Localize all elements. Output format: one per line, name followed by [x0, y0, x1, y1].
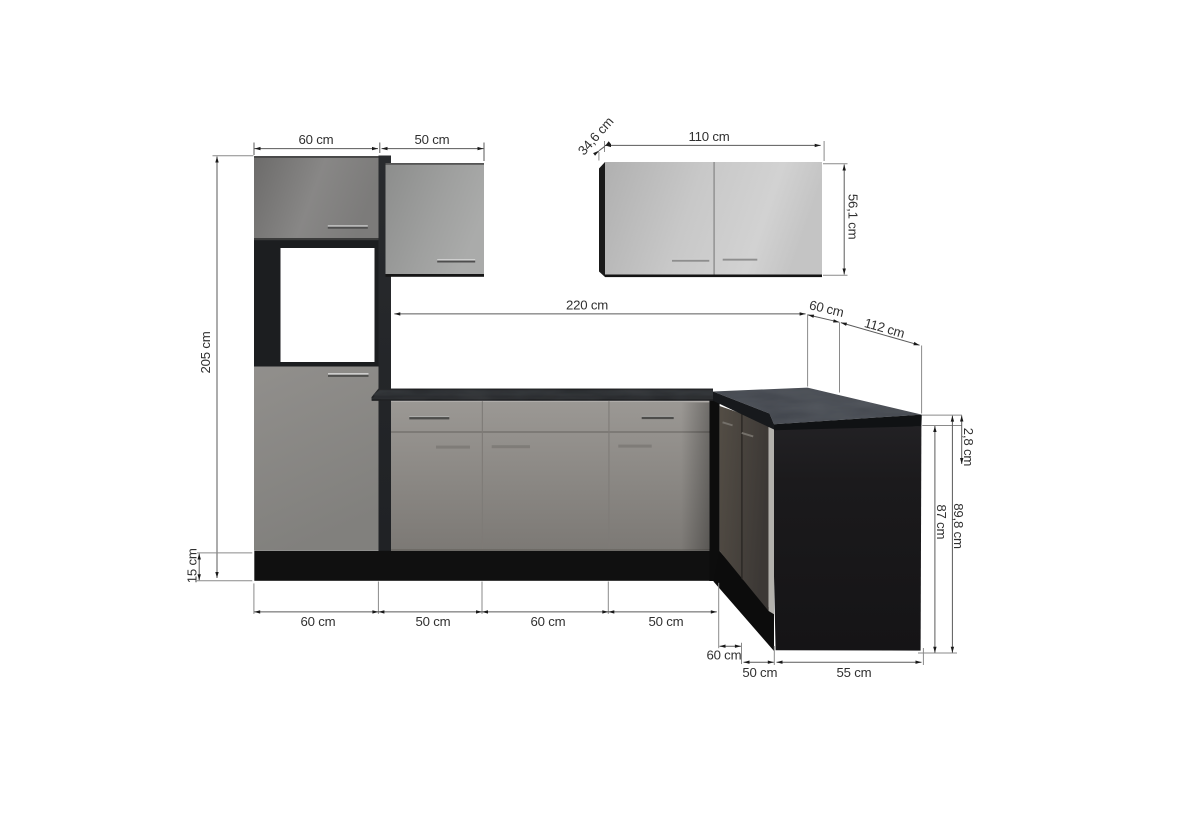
svg-text:60 cm: 60 cm [299, 132, 334, 147]
svg-text:110 cm: 110 cm [688, 129, 729, 144]
svg-text:220 cm: 220 cm [566, 298, 608, 313]
svg-text:56,1 cm: 56,1 cm [845, 194, 860, 240]
svg-text:87 cm: 87 cm [934, 504, 949, 539]
svg-text:60 cm: 60 cm [706, 648, 741, 663]
svg-text:50 cm: 50 cm [416, 614, 451, 629]
svg-text:50 cm: 50 cm [742, 665, 777, 680]
svg-text:89,8 cm: 89,8 cm [951, 503, 966, 549]
svg-text:60 cm: 60 cm [301, 614, 336, 629]
svg-text:60 cm: 60 cm [531, 614, 566, 629]
svg-text:15 cm: 15 cm [185, 548, 200, 583]
svg-text:55 cm: 55 cm [837, 665, 872, 680]
svg-text:50 cm: 50 cm [649, 614, 684, 629]
svg-text:50 cm: 50 cm [415, 132, 450, 147]
svg-text:2,8 cm: 2,8 cm [961, 428, 976, 467]
svg-text:205 cm: 205 cm [198, 331, 213, 373]
